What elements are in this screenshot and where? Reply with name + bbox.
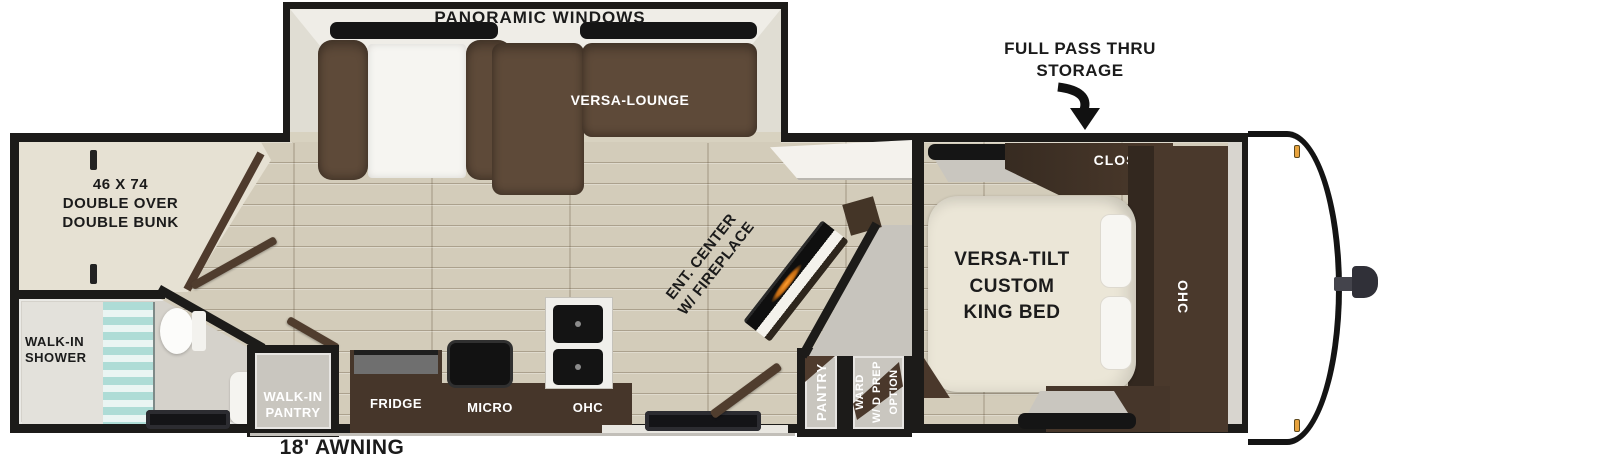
hitch-coupler [1352,266,1378,298]
ward-label-line3: OPTION [888,354,900,430]
versa-lounge-label: VERSA-LOUNGE [540,92,720,110]
walk-in-pantry-label: WALK-IN PANTRY [252,389,334,422]
ward-label-line2: W/ D PREP [871,354,883,430]
bunk-ladder-mark-top [90,150,97,170]
full-pass-thru-label: FULL PASS THRU STORAGE [990,38,1170,82]
front-interior-wall [1228,142,1242,424]
bedroom-wall [912,142,924,424]
bed-pillow-bottom [1100,296,1132,370]
panoramic-windows-label: PANORAMIC WINDOWS [330,7,750,28]
slide-bed-bolster-left [318,40,368,180]
bathroom-wall-horizontal [10,290,165,299]
bedroom-window-bottom [1018,413,1136,429]
sink-drain-lower [575,364,581,370]
bunk-ladder-mark-bottom [90,264,97,284]
floorplan-canvas: PANORAMIC WINDOWS VERSA-LOUNGE 46 X 74 D… [0,0,1600,462]
pantry-label: PANTRY [814,350,828,434]
micro-label: MICRO [450,400,530,416]
entry-mat [645,411,761,431]
slide-bed-mattress [368,44,466,178]
bathroom-mat [146,410,230,429]
bed-pillow-top [1100,214,1132,288]
bunk-label: 46 X 74 DOUBLE OVER DOUBLE BUNK [38,176,203,232]
marker-light-top [1294,145,1300,158]
range-cooktop [447,340,513,388]
down-arrow-icon [1052,82,1110,134]
bedroom-ohc-label: OHC [1175,267,1191,327]
sink-drain-upper [575,321,581,327]
fridge [350,350,442,433]
fridge-top [354,350,438,374]
toilet-tank [192,311,206,351]
king-bed-label: VERSA-TILT CUSTOM KING BED [932,247,1092,327]
kitchen-ohc-label: OHC [558,400,618,416]
awning-label: 18' AWNING [263,435,421,461]
toilet-bowl [160,308,194,354]
marker-light-bottom [1294,419,1300,432]
versa-lounge-chaise [492,43,584,195]
bedroom-window-bottom-sill [1028,391,1128,413]
ward-label-line1: WARD [854,354,866,430]
front-cap [1248,131,1342,445]
versa-lounge-sofa [582,43,757,137]
fridge-label: FRIDGE [352,396,440,412]
walk-in-shower-label: WALK-IN SHOWER [22,334,111,367]
